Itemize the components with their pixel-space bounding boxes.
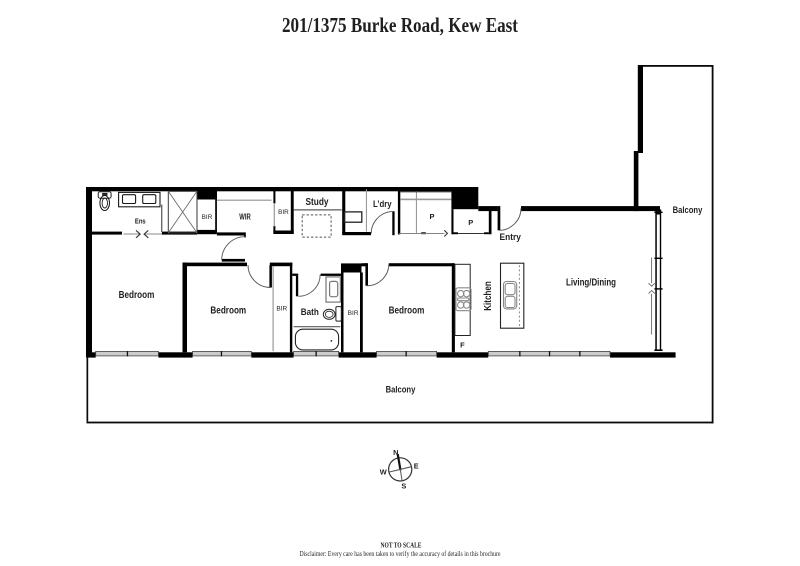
svg-text:BIR: BIR [348,310,359,317]
svg-text:Entry: Entry [500,231,522,242]
svg-text:Study: Study [306,196,329,208]
svg-text:Ens: Ens [135,217,146,226]
svg-text:Kitchen: Kitchen [483,281,494,311]
svg-text:P: P [429,212,434,221]
svg-text:BIR: BIR [278,209,289,216]
svg-text:Bath: Bath [301,307,319,318]
svg-text:W: W [380,468,387,477]
svg-text:N: N [393,448,398,457]
svg-text:BIR: BIR [202,214,213,221]
svg-text:L’dry: L’dry [373,199,392,210]
svg-text:Balcony: Balcony [386,384,416,395]
svg-text:Balcony: Balcony [673,205,703,216]
svg-text:F: F [460,340,465,349]
svg-text:Bedroom: Bedroom [119,290,155,301]
svg-text:201/1375 Burke Road, Kew East: 201/1375 Burke Road, Kew East [282,13,518,37]
svg-text:NOT TO SCALE: NOT TO SCALE [381,543,422,550]
svg-text:P: P [468,218,473,227]
svg-text:E: E [414,462,419,471]
svg-text:Bedroom: Bedroom [210,305,246,316]
svg-text:Bedroom: Bedroom [389,306,425,317]
svg-text:WIR: WIR [239,212,251,221]
svg-text:Disclaimer: Every care has bee: Disclaimer: Every care has been taken to… [300,551,501,558]
svg-text:Living/Dining: Living/Dining [566,278,616,289]
svg-text:S: S [401,481,406,490]
svg-text:BIR: BIR [276,305,287,312]
